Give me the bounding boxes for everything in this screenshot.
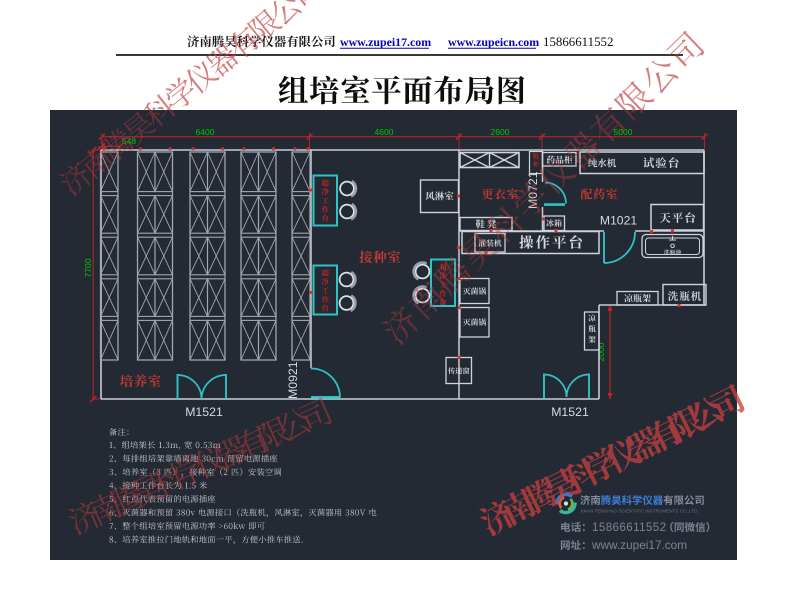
- svg-text:2000: 2000: [596, 342, 606, 361]
- svg-text:15866611552: 15866611552: [543, 35, 613, 49]
- svg-text:7700: 7700: [83, 258, 93, 277]
- svg-text:JINAN TENGHAO SCIENTIFIC INSTR: JINAN TENGHAO SCIENTIFIC INSTRUMENTS CO.…: [580, 509, 699, 514]
- svg-text:15866611552: 15866611552: [592, 521, 666, 534]
- svg-text:www.zupei17.com: www.zupei17.com: [340, 35, 431, 49]
- svg-text:M1021: M1021: [600, 214, 637, 228]
- svg-text:4600: 4600: [375, 127, 394, 137]
- svg-text:2600: 2600: [491, 127, 510, 137]
- svg-text:6400: 6400: [196, 127, 215, 137]
- svg-text:M0921: M0921: [286, 361, 300, 399]
- svg-text:www.zupei17.com: www.zupei17.com: [591, 538, 687, 552]
- svg-text:www.zupeicn.com: www.zupeicn.com: [448, 35, 539, 49]
- svg-text:M1521: M1521: [185, 405, 223, 419]
- svg-text:M1521: M1521: [551, 405, 589, 419]
